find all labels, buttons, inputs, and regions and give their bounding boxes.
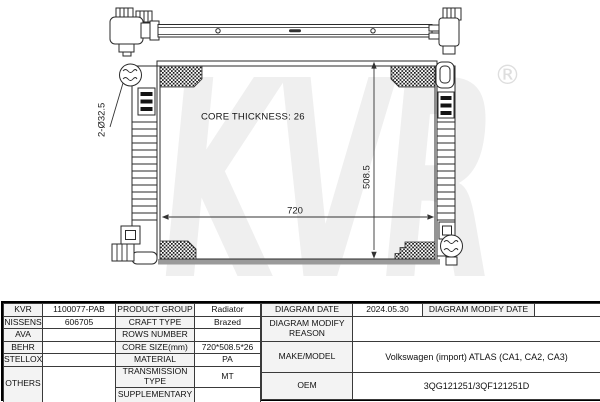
bottom-shadow-bar: [158, 259, 440, 265]
dim-height-label: 508.5: [362, 165, 373, 189]
table-row: BEHR CORE SIZE(mm) 720*508.5*26: [4, 342, 261, 354]
rows-number-value: [195, 329, 261, 342]
core-size-label: CORE SIZE(mm): [116, 342, 195, 354]
make-model-value: Volkswagen (import) ATLAS (CA1, CA2, CA3…: [353, 342, 600, 373]
product-group-label: PRODUCT GROUP: [116, 304, 195, 317]
top-view-tube: [158, 25, 432, 38]
supplementary-value: [195, 387, 261, 402]
nissens-code-cell: 606705: [43, 317, 116, 329]
left-lower-stub: [112, 244, 134, 261]
rows-number-label: ROWS NUMBER: [116, 329, 195, 342]
transmission-type-value: MT: [195, 367, 261, 388]
dim-pipe-diameter: 2-Ø32.5: [97, 83, 124, 137]
table-row: STELLOX MATERIAL PA: [4, 354, 261, 367]
spec-table-left: KVR 1100077-PAB PRODUCT GROUP Radiator N…: [3, 303, 261, 402]
diagram-modify-date-value: [535, 304, 600, 317]
dim-width-label: 720: [287, 206, 303, 217]
kvr-code-cell: 1100077-PAB: [43, 304, 116, 317]
diagram-date-value: 2024.05.30: [353, 304, 423, 317]
material-label: MATERIAL: [116, 354, 195, 367]
product-group-value: Radiator: [195, 304, 261, 317]
brand-cell-nissens: NISSENS: [4, 317, 43, 329]
material-value: PA: [195, 354, 261, 367]
brand-cell-ava: AVA: [4, 329, 43, 342]
right-lower-stub: [446, 257, 457, 265]
right-outlet-port: [441, 235, 463, 257]
top-view-left-fitting: [110, 8, 159, 56]
left-tank: [112, 64, 157, 264]
diagram-date-label: DIAGRAM DATE: [262, 304, 353, 317]
diagram-modify-reason-value: [353, 317, 600, 342]
craft-type-label: CRAFT TYPE: [116, 317, 195, 329]
craft-type-value: Brazed: [195, 317, 261, 329]
make-model-label: MAKE/MODEL: [262, 342, 353, 373]
table-row: OTHERS TRANSMISSION TYPE MT: [4, 367, 261, 388]
table-row: DIAGRAM MODIFY REASON: [262, 317, 600, 342]
mount-hole: [371, 29, 375, 33]
registered-trademark-icon: ®: [494, 60, 521, 91]
table-row: MAKE/MODEL Volkswagen (import) ATLAS (CA…: [262, 342, 600, 373]
table-row: NISSENS 606705 CRAFT TYPE Brazed: [4, 317, 261, 329]
table-row: AVA ROWS NUMBER: [4, 329, 261, 342]
supplementary-label: SUPPLEMENTARY: [116, 387, 195, 402]
spec-table-right: DIAGRAM DATE 2024.05.30 DIAGRAM MODIFY D…: [261, 303, 600, 400]
diagram-modify-date-label: DIAGRAM MODIFY DATE: [423, 304, 535, 317]
radiator-technical-drawing: KVR ®: [0, 0, 600, 300]
diagram-modify-reason-label: DIAGRAM MODIFY REASON: [262, 317, 353, 342]
left-inlet-port: [120, 64, 142, 86]
brand-cell-behr: BEHR: [4, 342, 43, 354]
top-header-bar: [157, 61, 437, 66]
fin-block-bottom-left: [160, 241, 196, 259]
core-size-value: 720*508.5*26: [195, 342, 261, 354]
brand-cell-others: OTHERS: [4, 367, 43, 402]
fin-block-top-left: [160, 66, 202, 87]
pipe-diameter-label: 2-Ø32.5: [97, 103, 108, 137]
mount-hole: [216, 29, 220, 33]
oem-value: 3QG121251/3QF121251D: [353, 373, 600, 400]
brand-cell-kvr: KVR: [4, 304, 43, 317]
table-row: OEM 3QG121251/3QF121251D: [262, 373, 600, 400]
brand-cell-stellox: STELLOX: [4, 354, 43, 367]
ava-code-cell: [43, 329, 116, 342]
transmission-type-label: TRANSMISSION TYPE: [116, 367, 195, 388]
table-row: KVR 1100077-PAB PRODUCT GROUP Radiator: [4, 304, 261, 317]
mount-slot: [289, 29, 301, 32]
stellox-code-cell: [43, 354, 116, 367]
others-code-cell: [43, 367, 116, 402]
radiator-datasheet-page: KVR ®: [0, 0, 600, 402]
fin-block-top-right: [391, 66, 435, 87]
behr-code-cell: [43, 342, 116, 354]
core-thickness-label: CORE THICKNESS: 26: [201, 112, 305, 123]
oem-label: OEM: [262, 373, 353, 400]
table-row: DIAGRAM DATE 2024.05.30 DIAGRAM MODIFY D…: [262, 304, 600, 317]
spec-table: KVR 1100077-PAB PRODUCT GROUP Radiator N…: [1, 301, 600, 401]
